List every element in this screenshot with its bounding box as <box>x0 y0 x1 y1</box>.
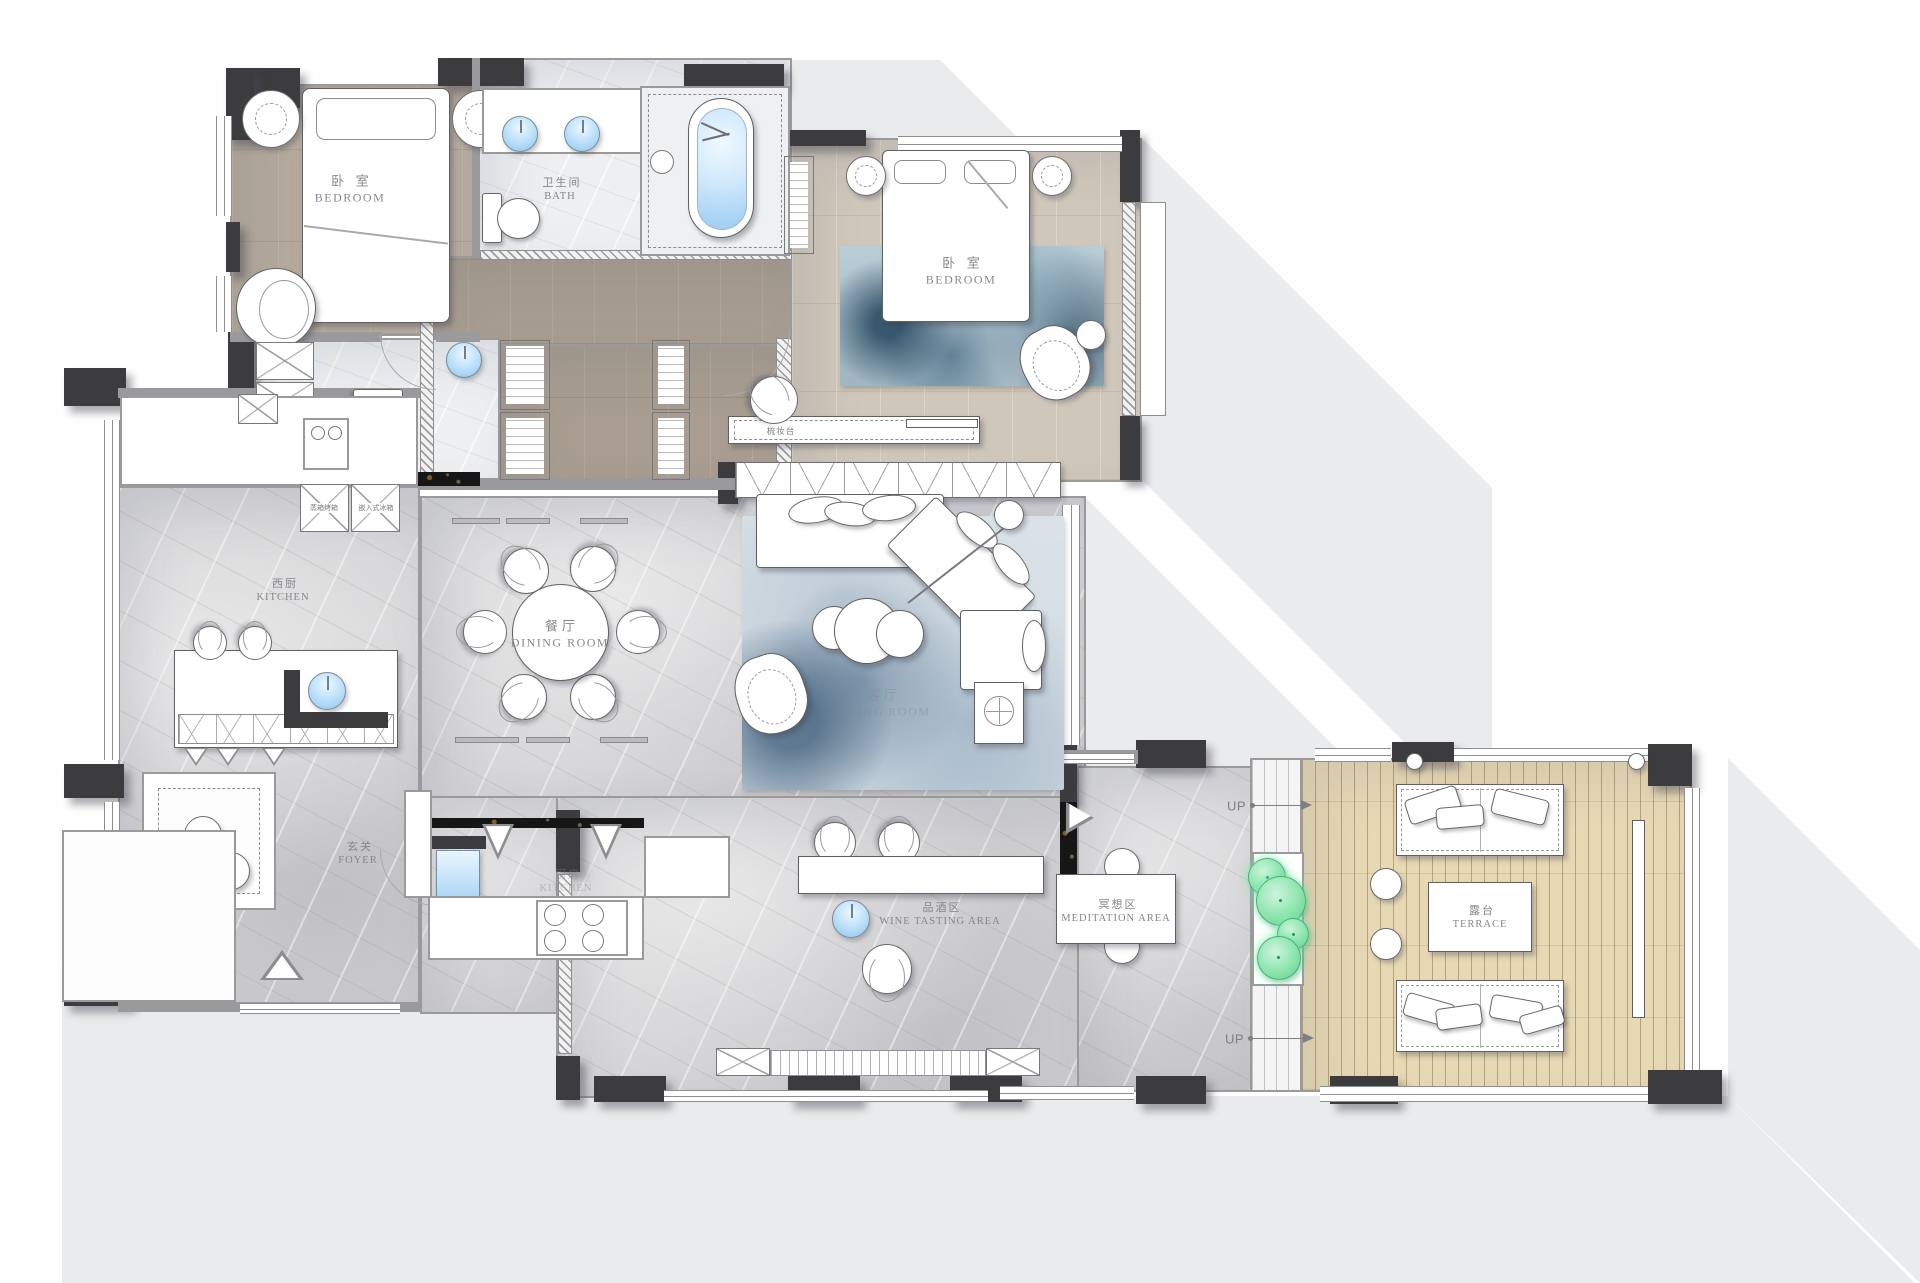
dresser-label: 梳妆台 <box>767 425 796 437</box>
nightstand <box>1032 156 1072 196</box>
burner <box>544 904 566 926</box>
wall-pillar <box>1392 742 1454 762</box>
room-label-dining: 餐厅 DINING ROOM <box>511 616 609 651</box>
room-label-zh: 餐厅 <box>511 616 609 635</box>
wall-shelf <box>906 419 978 428</box>
room-label-en: KITCHEN <box>539 883 592 894</box>
entry-porch <box>62 830 236 1002</box>
room-label-en: FOYER <box>338 855 377 866</box>
bar-sink <box>832 900 870 938</box>
room-label-zh: 卧 室 <box>926 253 997 272</box>
room-label-zh: 卫生间 <box>539 174 582 190</box>
room-label-zh: 西厨 <box>256 575 309 591</box>
up-arrow <box>1250 1038 1312 1039</box>
wardrobe <box>652 412 690 480</box>
stool-symbol <box>184 748 208 766</box>
wc-sink <box>446 342 482 378</box>
armchair <box>236 268 316 348</box>
window-band <box>664 1090 988 1102</box>
room-label-foyer: 玄关 FOYER <box>338 838 377 866</box>
dining-chair <box>463 610 507 654</box>
hatched-wall <box>1122 202 1136 416</box>
easel-symbol <box>1066 802 1094 834</box>
pantry-box <box>238 394 278 424</box>
door-track <box>455 737 519 743</box>
floor-drain <box>650 150 674 174</box>
window-band <box>1684 788 1700 1070</box>
room-label-zh: 玄关 <box>338 838 377 854</box>
wine-bar-table <box>798 856 1044 894</box>
fridge-label: 嵌入式冰箱 <box>358 503 395 513</box>
bathtub-water <box>697 108 747 230</box>
room-label-bath: 卫生间 BATH <box>539 174 582 202</box>
cellar-end-box <box>986 1048 1040 1076</box>
bar-stool <box>193 626 227 660</box>
wall-segment <box>436 332 480 342</box>
room-label-bedroom2: 卧 室 BEDROOM <box>926 253 997 288</box>
wardrobe <box>500 340 550 410</box>
room-label-bedroom1: 卧 室 BEDROOM <box>315 171 386 206</box>
threshold-stone <box>408 472 480 486</box>
window-band <box>1454 748 1648 762</box>
bath-sink <box>502 116 538 152</box>
wall-pillar <box>438 58 524 86</box>
room-label-en: LIVING ROOM <box>834 705 931 720</box>
toilet <box>482 193 540 243</box>
bed-pillow <box>894 160 946 184</box>
room-label-zh: 厨房 <box>539 866 592 882</box>
deck-knob <box>1628 753 1645 770</box>
up-label: UP <box>1225 1032 1244 1047</box>
tv-console <box>735 462 1061 498</box>
nightstand <box>846 156 886 196</box>
room-label-living: 客厅 LIVING ROOM <box>834 685 931 720</box>
window-band <box>1062 505 1080 745</box>
up-arrow <box>1252 805 1310 806</box>
tall-cabinet <box>644 836 730 898</box>
cellar-end-box <box>716 1048 770 1076</box>
room-label-en: MEDITATION AREA <box>1061 913 1171 924</box>
burner <box>544 930 566 952</box>
cooktop-appliance <box>303 418 349 470</box>
room-label-zh: 品酒区 <box>879 899 1001 915</box>
wall-pillar <box>1136 1076 1206 1104</box>
daybed-cushion <box>1435 804 1485 830</box>
wall-pillar <box>556 1056 580 1100</box>
wall-pillar <box>684 64 784 88</box>
bar-chair <box>862 944 912 994</box>
wall-pillar <box>226 222 240 272</box>
room-label-zh: 客厅 <box>834 685 931 704</box>
door-track <box>506 518 550 524</box>
bed-pillow <box>316 98 436 140</box>
coffee-table <box>876 610 924 658</box>
up-label: UP <box>1227 799 1246 814</box>
bay-window <box>1140 202 1166 416</box>
door-track <box>526 737 570 743</box>
wall-pillar <box>1136 740 1206 768</box>
room-label-en: KITCHEN <box>256 592 309 603</box>
room-label-en: DINING ROOM <box>511 636 609 651</box>
door-track <box>452 518 500 524</box>
window-band <box>1000 1086 1134 1100</box>
window-band <box>104 420 120 760</box>
window-band <box>1315 748 1391 762</box>
window-band <box>216 116 232 216</box>
folding-door-symbol <box>590 824 622 860</box>
wardrobe <box>500 412 550 480</box>
folding-door-symbol <box>482 824 514 860</box>
nightstand <box>242 90 300 148</box>
room-label-zh: 露台 <box>1453 902 1508 918</box>
burner <box>582 930 604 952</box>
sofa-cushion <box>1022 620 1046 672</box>
wall-segment <box>472 58 480 256</box>
room-label-zh: 卧 室 <box>315 171 386 190</box>
room-label-en: BEDROOM <box>315 191 386 206</box>
wardrobe <box>652 340 690 410</box>
room-label-west-kitchen: 西厨 KITCHEN <box>256 575 309 603</box>
room-label-zh: 冥想区 <box>1061 896 1171 912</box>
door-track <box>580 518 628 524</box>
stool-symbol <box>216 748 240 766</box>
terrace-bench <box>1632 820 1645 1018</box>
terrace-side-table <box>1370 928 1402 960</box>
floor-lamp <box>994 500 1024 530</box>
terrace-side-table <box>1370 868 1402 900</box>
dining-chair <box>616 610 660 654</box>
window-band <box>1320 1086 1648 1102</box>
floor-plan-canvas: 卧 室 BEDROOM 卫生间 BATH 卧 室 BEDROOM 西厨 KITC… <box>0 0 1920 1283</box>
window-band <box>240 1003 400 1014</box>
plant <box>1257 936 1301 980</box>
kitchen-counter <box>404 790 432 898</box>
room-label-en: WINE TASTING AREA <box>879 916 1001 927</box>
room-label-kitchen: 厨房 KITCHEN <box>539 866 592 894</box>
steam-oven-label: 蒸箱烤箱 <box>309 503 339 513</box>
wine-rack-band <box>770 1050 986 1076</box>
door-track <box>600 737 648 743</box>
room-label-wine: 品酒区 WINE TASTING AREA <box>879 899 1001 927</box>
room-label-meditation: 冥想区 MEDITATION AREA <box>1061 896 1171 924</box>
washer-box <box>256 342 314 380</box>
window-band <box>216 276 232 332</box>
island-stone-top <box>284 712 388 728</box>
burner <box>328 426 342 440</box>
wall-pillar <box>64 368 126 406</box>
room-label-en: TERRACE <box>1453 919 1508 930</box>
toilet-bowl <box>497 198 540 239</box>
wardrobe <box>784 156 814 254</box>
island-sink <box>308 672 346 710</box>
room-label-en: BATH <box>539 191 582 202</box>
room-label-en: BEDROOM <box>926 273 997 288</box>
wall-pillar <box>1648 744 1692 786</box>
wall-pillar <box>1648 1070 1722 1104</box>
deck-knob <box>1406 753 1423 770</box>
room-label-terrace: 露台 TERRACE <box>1453 902 1508 930</box>
entry-marker <box>260 950 304 980</box>
wall-pillar <box>1120 416 1140 480</box>
burner <box>582 904 604 926</box>
wall-pillar <box>594 1076 666 1102</box>
burner <box>311 426 325 440</box>
wall-pillar <box>778 130 866 146</box>
stool-symbol <box>262 748 286 766</box>
side-table <box>1076 320 1106 350</box>
bar-stool <box>238 626 272 660</box>
wall-pillar <box>1120 130 1140 202</box>
wall-pillar <box>64 764 124 798</box>
compass-decor <box>984 696 1014 726</box>
bath-sink <box>564 116 600 152</box>
